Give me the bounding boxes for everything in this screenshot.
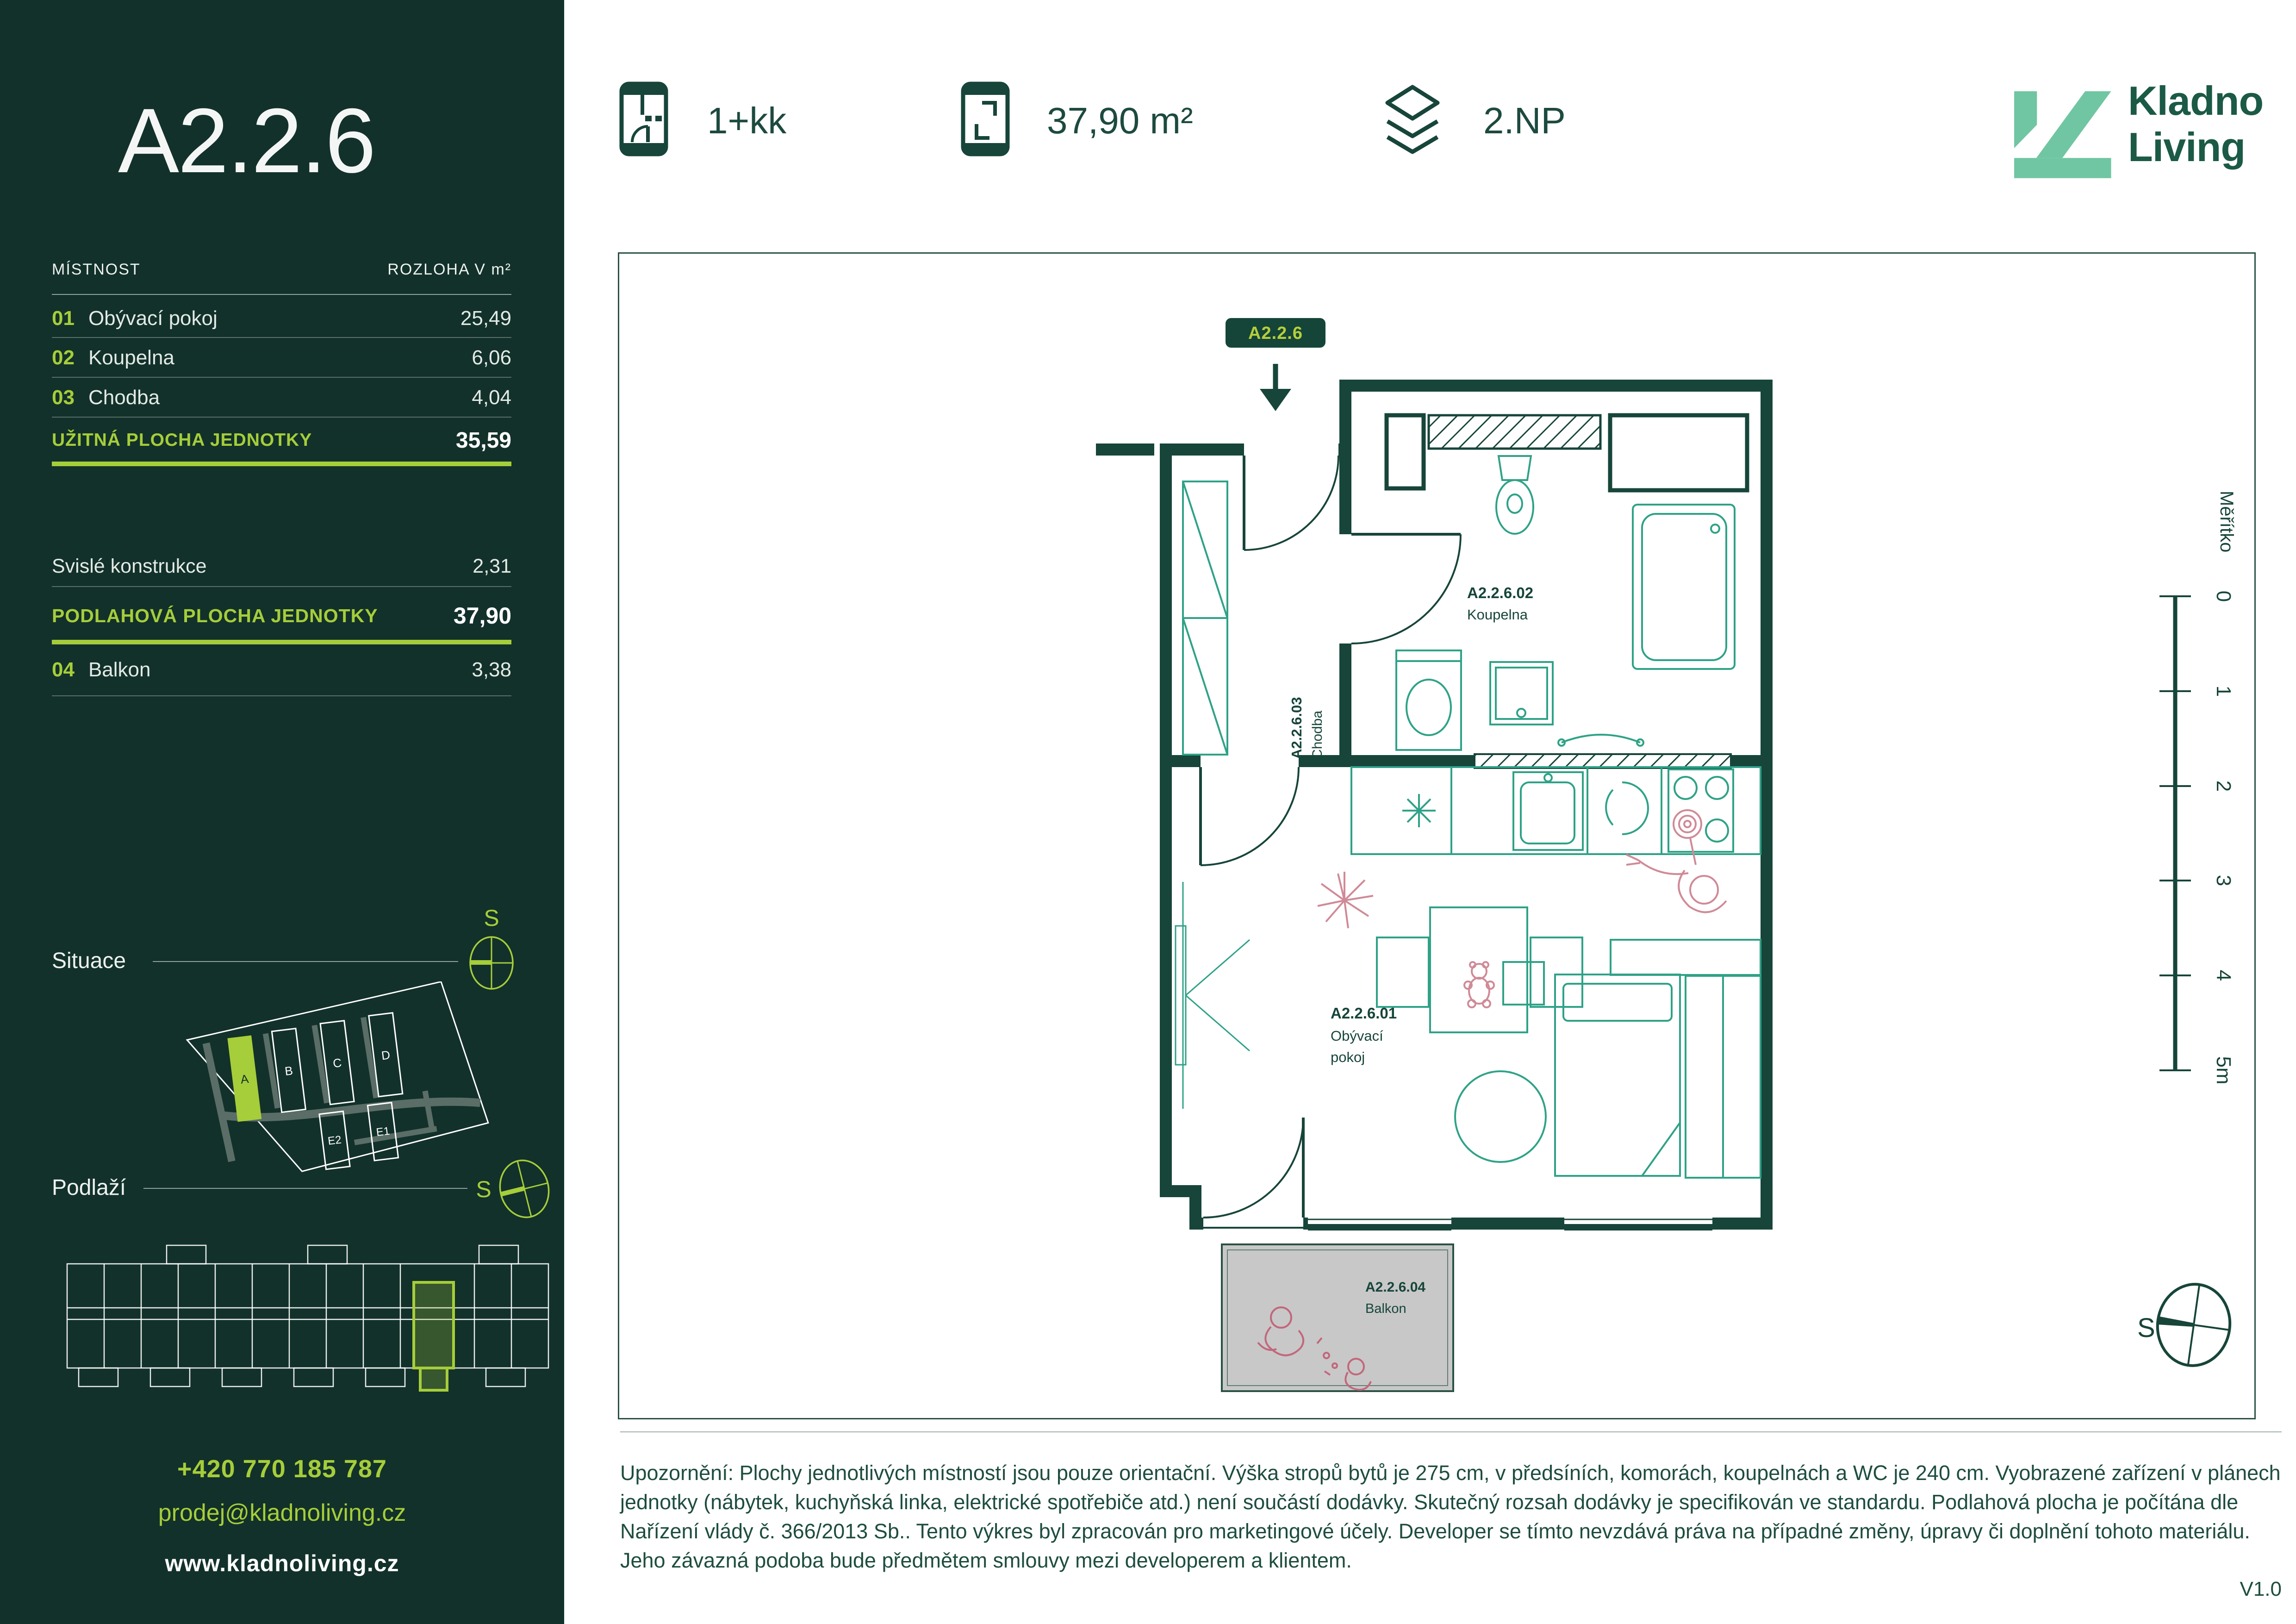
svg-text:Balkon: Balkon	[1365, 1301, 1406, 1316]
row-num: 01	[52, 307, 75, 330]
svg-text:A2.2.6.01: A2.2.6.01	[1331, 1005, 1397, 1022]
table-row: 01 Obývací pokoj 25,49	[52, 300, 511, 337]
floor-area-value: 37,90	[454, 602, 511, 629]
row-value: 6,06	[472, 346, 511, 369]
divider	[52, 695, 511, 696]
divider	[52, 417, 511, 418]
room-labels: A2.2.6.02 Koupelna A2.2.6.03 Chodba A2.2…	[1288, 584, 1533, 1065]
svg-text:S: S	[2137, 1313, 2155, 1343]
bed	[1555, 974, 1680, 1176]
svg-text:E2: E2	[327, 1133, 342, 1147]
divider	[52, 294, 511, 295]
floor-area-label: PODLAHOVÁ PLOCHA JEDNOTKY	[52, 605, 378, 627]
scale-ruler: Měřítko 0 1 2 3 4 5m	[2159, 491, 2237, 1085]
floor-plan: A2.2.6 A2.2.6.04 Balkon	[618, 252, 2253, 1417]
svg-text:Obývací: Obývací	[1331, 1028, 1383, 1044]
footer-divider	[620, 1431, 2282, 1432]
row-num: 03	[52, 386, 75, 409]
floor-area-row: PODLAHOVÁ PLOCHA JEDNOTKY 37,90	[52, 600, 511, 632]
row-name: Balkon	[88, 658, 151, 681]
row-name: Koupelna	[88, 346, 174, 369]
kitchen	[1351, 767, 1761, 854]
disclaimer-text: Upozornění: Plochy jednotlivých místnost…	[620, 1458, 2282, 1575]
row-num: 04	[52, 658, 75, 681]
table	[1430, 907, 1527, 1032]
boiler-icon	[1402, 794, 1436, 827]
chair	[1377, 937, 1429, 1007]
road	[206, 1042, 232, 1163]
svg-text:4: 4	[2212, 970, 2235, 981]
col-room: MÍSTNOST	[52, 261, 141, 279]
unit-code-title: A2.2.6	[118, 88, 374, 193]
svg-text:B: B	[284, 1063, 294, 1078]
floor-icon	[1385, 84, 1440, 155]
table-header: MÍSTNOST ROZLOHA V m²	[52, 256, 511, 283]
situace-line	[153, 961, 458, 962]
svg-text:0: 0	[2212, 591, 2235, 602]
divider	[52, 337, 511, 338]
highlighted-unit-balcony	[420, 1368, 447, 1390]
row-value: 4,04	[472, 386, 511, 409]
walls	[1096, 380, 1773, 1230]
teddy-bear-icon	[1464, 962, 1494, 1007]
shaft	[1610, 415, 1747, 490]
version-label: V1.0	[2147, 1578, 2282, 1601]
vertical-structures-row: Svislé konstrukce 2,31	[52, 551, 511, 581]
compass-west-arm	[470, 960, 492, 965]
building-floor-plan	[51, 1227, 555, 1403]
contact-website[interactable]: www.kladnoliving.cz	[0, 1550, 564, 1577]
nightstand	[1503, 962, 1544, 1005]
situace-label: Situace	[52, 948, 126, 974]
balcony-row: 04 Balkon 3,38	[52, 654, 511, 686]
contact-phone[interactable]: +420 770 185 787	[0, 1455, 564, 1483]
svg-text:S: S	[484, 905, 499, 931]
bathroom-fixtures	[1396, 456, 1735, 750]
road	[266, 1033, 278, 1109]
brand-wordmark: Kladno Living	[2128, 78, 2263, 170]
col-area: ROZLOHA V m²	[387, 261, 511, 279]
area-label: 37,90 m²	[1047, 100, 1193, 142]
dining-set	[1377, 907, 1582, 1032]
svg-text:C: C	[332, 1056, 342, 1070]
svg-text:D: D	[380, 1048, 391, 1062]
closet	[1183, 481, 1227, 755]
row-name: Svislé konstrukce	[52, 555, 207, 578]
svg-text:A2.2.6: A2.2.6	[1248, 324, 1303, 343]
svg-text:A2.2.6.02: A2.2.6.02	[1467, 584, 1533, 601]
balcony: A2.2.6.04 Balkon	[1222, 1244, 1453, 1391]
svg-text:1: 1	[2212, 686, 2235, 697]
shelf	[1611, 940, 1761, 975]
svg-text:S: S	[476, 1176, 491, 1202]
usable-area-row: UŽITNÁ PLOCHA JEDNOTKY 35,59	[52, 424, 511, 457]
north-compass-icon: S	[2137, 1280, 2235, 1370]
kladno-living-logo-mark	[2011, 82, 2115, 188]
floor-label: 2.NP	[1483, 100, 1566, 142]
layout-label: 1+kk	[707, 100, 786, 142]
row-value: 25,49	[460, 307, 511, 330]
pouf	[1455, 1071, 1546, 1162]
brand-line2: Living	[2128, 124, 2263, 170]
hatched-wall	[1475, 754, 1731, 768]
brand-line1: Kladno	[2128, 78, 2263, 124]
podlazi-compass-icon: S	[470, 1143, 562, 1235]
sidebar: A2.2.6 MÍSTNOST ROZLOHA V m² 01 Obývací …	[0, 0, 564, 1624]
divider	[52, 586, 511, 587]
plant-icon	[1318, 872, 1373, 928]
svg-text:E1: E1	[375, 1125, 390, 1139]
svg-text:5m: 5m	[2212, 1056, 2235, 1084]
bed-group	[1455, 940, 1761, 1178]
highlighted-unit	[414, 1282, 454, 1368]
row-value: 2,31	[473, 555, 511, 578]
svg-text:Měřítko: Měřítko	[2216, 491, 2237, 552]
layout-icon	[619, 81, 668, 156]
usable-label: UŽITNÁ PLOCHA JEDNOTKY	[52, 430, 312, 450]
svg-text:pokoj: pokoj	[1331, 1049, 1365, 1065]
area-icon	[961, 81, 1010, 156]
svg-text:A2.2.6.03: A2.2.6.03	[1288, 697, 1305, 759]
contact-email[interactable]: prodej@kladnoliving.cz	[0, 1499, 564, 1527]
sink-icon	[1490, 662, 1553, 725]
row-name: Chodba	[88, 386, 160, 409]
doors	[1201, 456, 1461, 1218]
svg-text:3: 3	[2212, 875, 2235, 886]
toilet-icon	[1499, 456, 1531, 480]
green-bar	[52, 462, 511, 466]
row-num: 02	[52, 346, 75, 369]
green-bar	[52, 640, 511, 644]
towel-rail-icon	[1562, 735, 1640, 743]
svg-text:A2.2.6.04: A2.2.6.04	[1365, 1280, 1425, 1295]
divider	[52, 377, 511, 378]
chair	[1531, 937, 1582, 1007]
pillow	[1563, 984, 1672, 1021]
floorplan-sheet: A2.2.6 MÍSTNOST ROZLOHA V m² 01 Obývací …	[0, 0, 2296, 1624]
hatched-wall	[1429, 415, 1600, 449]
row-value: 3,38	[472, 658, 511, 681]
unit-tag: A2.2.6	[1226, 318, 1325, 411]
row-name: Obývací pokoj	[88, 307, 218, 330]
svg-text:Chodba: Chodba	[1310, 711, 1325, 759]
shaft	[1387, 415, 1424, 488]
site-map: A B C D E2 E1	[153, 981, 518, 1185]
svg-text:Koupelna: Koupelna	[1467, 606, 1528, 623]
window-marks	[1176, 882, 1250, 1109]
table-row: 02 Koupelna 6,06	[52, 343, 511, 373]
table-row: 03 Chodba 4,04	[52, 382, 511, 413]
usable-value: 35,59	[456, 428, 511, 453]
podlazi-label: Podlaží	[52, 1175, 126, 1200]
podlazi-line	[143, 1188, 467, 1189]
fridge-icon	[1622, 782, 1648, 834]
svg-text:2: 2	[2212, 781, 2235, 792]
